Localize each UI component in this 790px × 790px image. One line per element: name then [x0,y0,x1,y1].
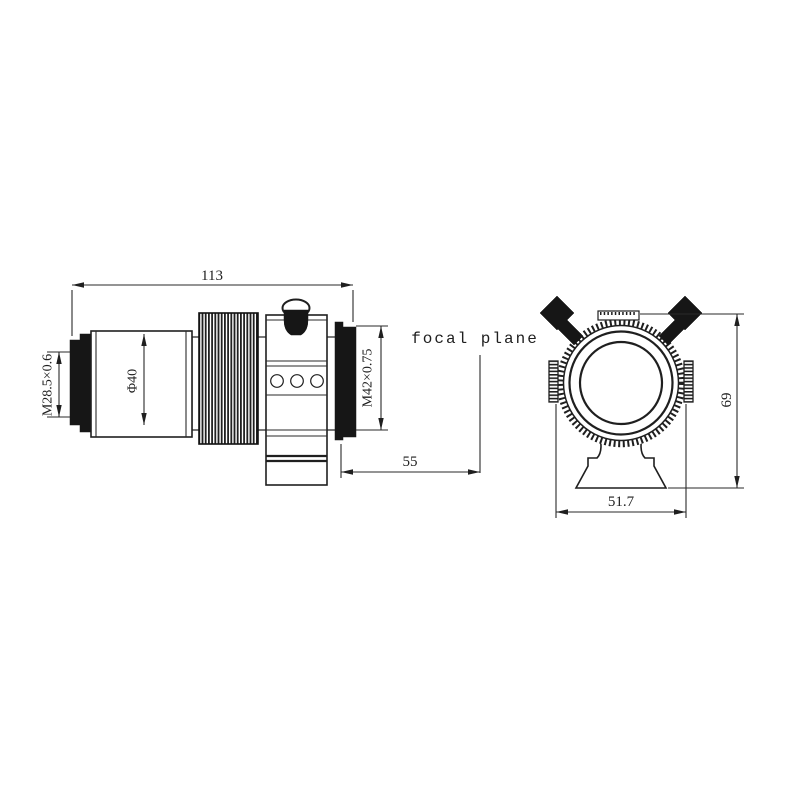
dim-back-focus: 55 [403,454,418,470]
rear-flange [335,322,343,440]
lock-thumbscrew [283,300,310,336]
rear-thread [343,327,356,437]
mount-bracket [266,315,327,485]
bracket-holes [271,375,324,388]
ring-side-tab-left [549,361,558,402]
dim-ring-width: 51.7 [608,494,635,510]
technical-drawing: 113 M28.5×0.6 Φ40 M42×0.75 55 focal [0,0,790,790]
dimension-rear-thread: M42×0.75 [356,326,388,430]
ring-side-tab-right [684,361,693,402]
focal-plane-label: focal plane [411,330,539,348]
dim-front-thread: M28.5×0.6 [41,354,56,416]
dim-overall-length: 113 [201,268,223,284]
ring-bore [580,342,662,424]
focus-ring-knurled [199,313,258,444]
dimension-front-thread: M28.5×0.6 [41,352,71,417]
front-thread [70,334,92,432]
alignment-screw-right [659,296,702,345]
thumbscrew-body [284,310,308,335]
product-diagram-page: 113 M28.5×0.6 Φ40 M42×0.75 55 focal [0,0,790,790]
dim-tube-diameter: Φ40 [126,369,141,393]
alignment-screw-left [540,296,583,345]
dim-overall-height: 69 [719,393,735,408]
main-tube [91,331,192,437]
front-view: 69 51.7 [540,296,744,518]
side-view: 113 M28.5×0.6 Φ40 M42×0.75 55 focal [41,268,539,485]
dim-rear-thread: M42×0.75 [361,349,376,408]
